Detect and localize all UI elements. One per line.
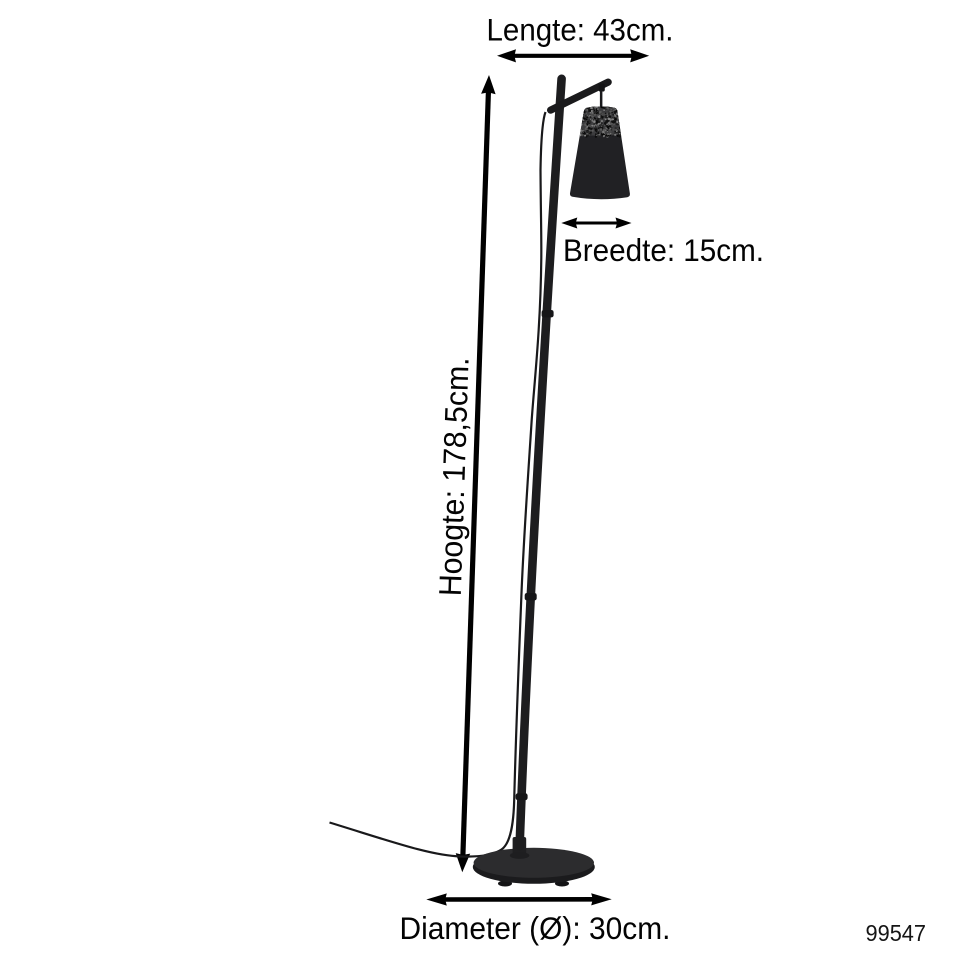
svg-text:Diameter (Ø): 30cm.: Diameter (Ø): 30cm. bbox=[400, 910, 671, 946]
svg-text:Breedte: 15cm.: Breedte: 15cm. bbox=[563, 232, 764, 268]
svg-text:Lengte: 43cm.: Lengte: 43cm. bbox=[487, 11, 674, 47]
svg-text:99547: 99547 bbox=[866, 920, 927, 946]
